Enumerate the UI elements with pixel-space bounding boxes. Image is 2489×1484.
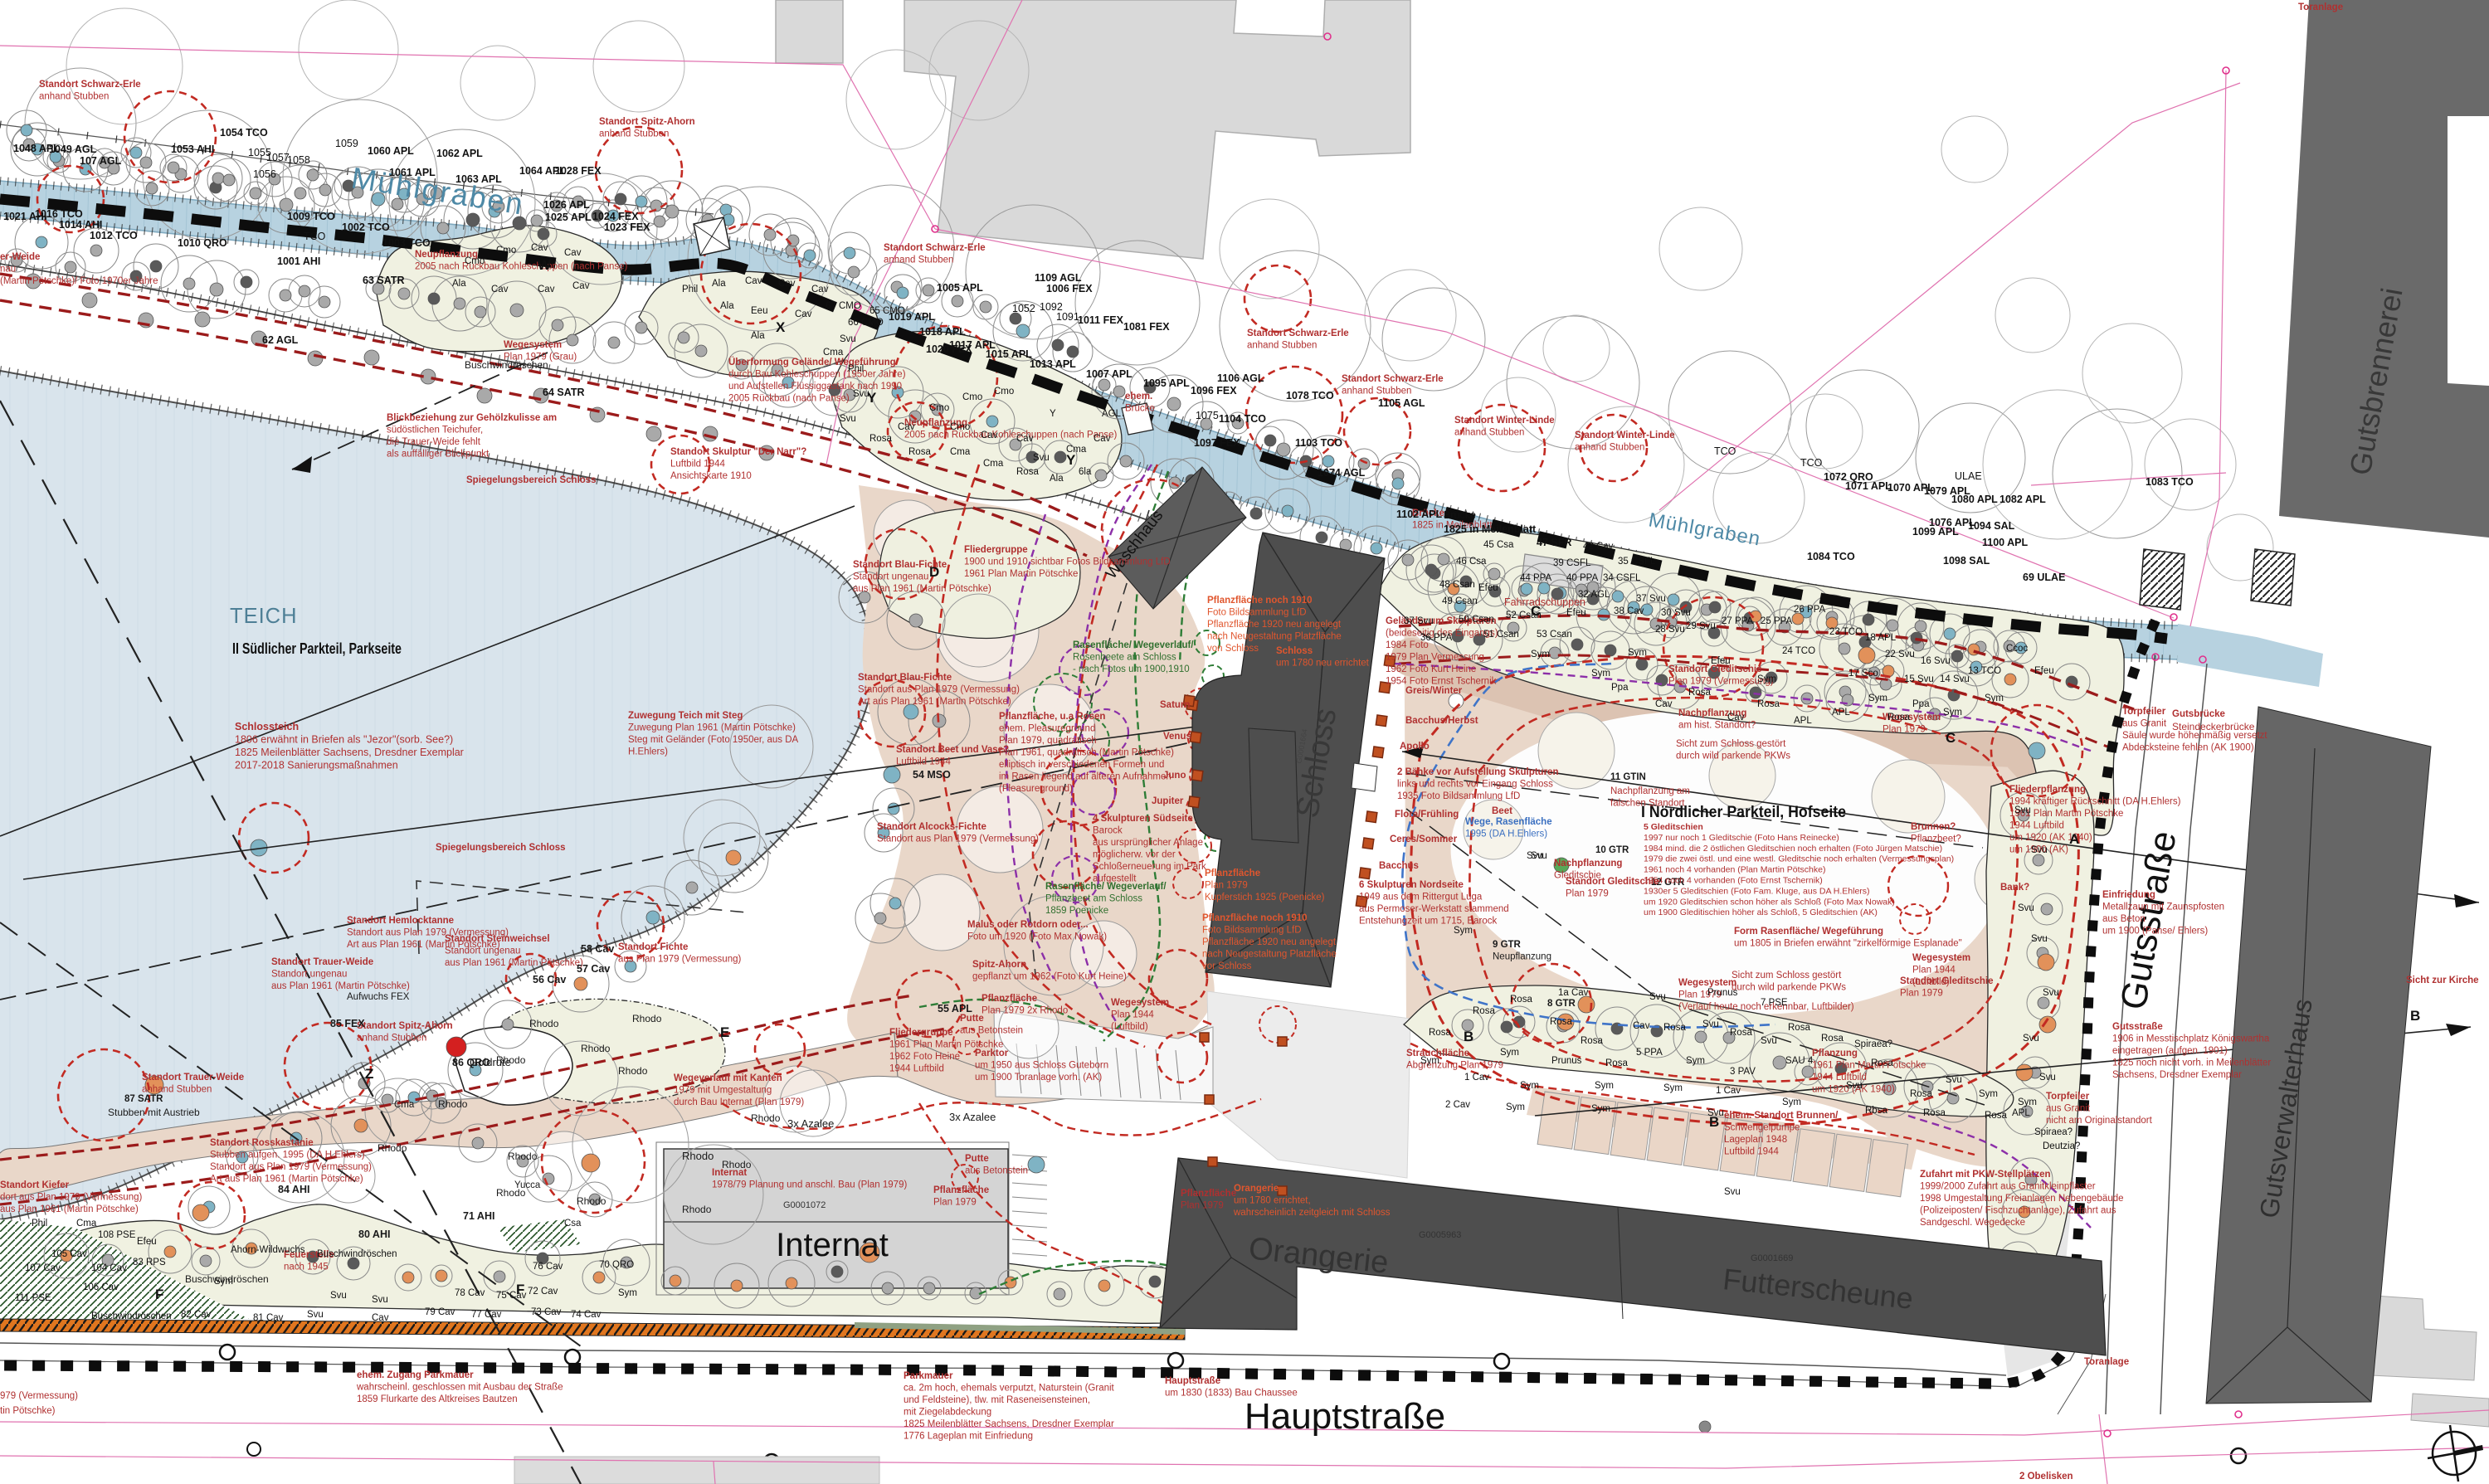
svg-text:63 SATR: 63 SATR [363, 275, 404, 286]
svg-text:Standort ungenau: Standort ungenau [853, 572, 928, 582]
svg-text:A: A [2069, 831, 2079, 847]
svg-text:4 Skulpturen Südseite: 4 Skulpturen Südseite [1093, 814, 1193, 824]
svg-text:Stubben aufgen. 1995 (DA H.Ehl: Stubben aufgen. 1995 (DA H.Ehlers) [210, 1151, 365, 1160]
svg-text:anhand Stubben: anhand Stubben [1454, 428, 1524, 438]
svg-text:Sym: Sym [1506, 1102, 1525, 1112]
svg-text:X: X [776, 319, 786, 335]
svg-text:Schloßerneuerung im Park: Schloßerneuerung im Park [1093, 862, 1206, 872]
svg-text:Ala: Ala [751, 331, 765, 341]
svg-text:1084 TCO: 1084 TCO [1807, 551, 1855, 562]
svg-text:Svu: Svu [372, 1295, 388, 1305]
svg-text:Spiraea?: Spiraea? [1854, 1039, 1892, 1049]
svg-text:Svu: Svu [1033, 453, 1050, 463]
svg-text:Gutsbrücke: Gutsbrücke [2172, 709, 2225, 719]
svg-text:Rosa: Rosa [1550, 1017, 1572, 1027]
svg-text:1998 Umgestaltung Freianlagen: 1998 Umgestaltung Freianlagen Nebengebäu… [1920, 1194, 2124, 1204]
svg-text:1944 Luftbild: 1944 Luftbild [889, 1064, 944, 1074]
svg-text:1013 APL: 1013 APL [1030, 358, 1076, 370]
svg-text:Efeu: Efeu [137, 1237, 157, 1247]
svg-text:2 Cav: 2 Cav [1445, 1100, 1470, 1110]
svg-text:1776 Lageplan mit Einfriedung: 1776 Lageplan mit Einfriedung [904, 1432, 1033, 1442]
svg-text:Wege, Rasenfläche: Wege, Rasenfläche [1465, 817, 1552, 827]
svg-text:um 1920 Gleditschien schon höh: um 1920 Gleditschien schon höher als Sch… [1644, 897, 1895, 907]
svg-text:W: W [538, 257, 552, 273]
svg-text:2005 nach Rückbau Kohleschuppe: 2005 nach Rückbau Kohleschuppen (nach Pa… [904, 431, 1118, 440]
svg-text:Standort aus Plan 1979 (Vermes: Standort aus Plan 1979 (Vermessung) [210, 1162, 372, 1172]
svg-text:1949 aus dem Rittergut Luga: 1949 aus dem Rittergut Luga [1359, 893, 1483, 903]
svg-text:1009 TCO: 1009 TCO [287, 211, 335, 222]
svg-text:Svu: Svu [1527, 851, 1543, 861]
svg-text:Rosa: Rosa [1473, 1006, 1495, 1016]
svg-text:durch wild parkende PKWs: durch wild parkende PKWs [1676, 752, 1790, 761]
svg-text:Toranlage: Toranlage [2298, 2, 2343, 12]
svg-text:64 SATR: 64 SATR [543, 387, 584, 398]
svg-text:Standort Trauer-Weide: Standort Trauer-Weide [271, 957, 373, 967]
svg-text:Fliederpflanzung: Fliederpflanzung [2009, 785, 2086, 795]
svg-text:Rosa: Rosa [1887, 713, 1910, 723]
svg-text:Plan 1944: Plan 1944 [1912, 966, 1956, 976]
svg-text:Rhodo: Rhodo [508, 1151, 538, 1162]
svg-text:Pflanzung: Pflanzung [1812, 1049, 1858, 1058]
svg-text:18 APL: 18 APL [1865, 633, 1897, 643]
svg-text:durch Bau Kohleschuppen (1950e: durch Bau Kohleschuppen (1950er Jahre) [728, 370, 906, 380]
svg-text:Rosa: Rosa [1923, 1108, 1946, 1118]
svg-text:- nach Fotos um 1900,1910: - nach Fotos um 1900,1910 [1073, 664, 1190, 674]
svg-text:Standort Blau-Fichte: Standort Blau-Fichte [858, 673, 952, 683]
svg-text:Cav: Cav [372, 1313, 389, 1323]
svg-text:44 PPA: 44 PPA [1520, 573, 1551, 583]
svg-text:Hauptstraße: Hauptstraße [1165, 1376, 1220, 1386]
svg-text:57 Cav: 57 Cav [577, 963, 610, 975]
svg-text:Stubben mit Austrieb: Stubben mit Austrieb [108, 1107, 200, 1118]
svg-text:Sym: Sym [1500, 1048, 1519, 1058]
svg-text:75 Cav: 75 Cav [496, 1291, 527, 1301]
svg-text:Standort Spitz-Ahorn: Standort Spitz-Ahorn [599, 117, 695, 127]
svg-text:nau: nau [0, 265, 16, 275]
svg-text:32 AGL: 32 AGL [1578, 590, 1610, 600]
svg-text:14 Svu: 14 Svu [1940, 674, 1970, 684]
svg-text:111 PSE: 111 PSE [15, 1293, 51, 1303]
svg-text:10 GTR: 10 GTR [1595, 845, 1629, 855]
svg-text:D: D [929, 564, 939, 580]
svg-text:1014 AHI: 1014 AHI [59, 219, 102, 231]
svg-text:1010 QRO: 1010 QRO [178, 237, 227, 249]
svg-text:Sym: Sym [1686, 1056, 1705, 1066]
svg-text:1105 AGL: 1105 AGL [1378, 397, 1425, 409]
svg-text:Sachsens, Dresdner Exemplar: Sachsens, Dresdner Exemplar [2112, 1070, 2242, 1080]
svg-text:1063 APL: 1063 APL [455, 173, 502, 185]
svg-text:aus Plan 1961 (Martin Pötschke: aus Plan 1961 (Martin Pötschke) [271, 981, 410, 991]
svg-text:Spiraea?: Spiraea? [2034, 1127, 2073, 1137]
svg-text:Pflanzfläche: Pflanzfläche [1181, 1189, 1236, 1199]
svg-text:Brunnen?: Brunnen? [1911, 822, 1956, 832]
svg-text:im Rasen liegend auf älteren A: im Rasen liegend auf älteren Aufnahmen [999, 772, 1171, 782]
svg-text:um 1920 (AK 1940): um 1920 (AK 1940) [2009, 833, 2092, 843]
svg-text:Luftbild 1944: Luftbild 1944 [670, 460, 725, 470]
svg-text:anhand Stubben: anhand Stubben [142, 1085, 212, 1095]
svg-text:anhand Stubben: anhand Stubben [39, 92, 109, 102]
svg-text:Venus: Venus [1163, 732, 1191, 742]
svg-text:Sym: Sym [1520, 1081, 1539, 1091]
svg-text:Sym: Sym [1591, 669, 1610, 679]
svg-text:Standort Schwarz-Erle: Standort Schwarz-Erle [39, 80, 141, 90]
svg-text:Abdecksteine fehlen (AK 1900): Abdecksteine fehlen (AK 1900) [2122, 743, 2254, 753]
svg-text:1999/2000 Zufahrt aus Granitkl: 1999/2000 Zufahrt aus Granitkleinpflaste… [1920, 1182, 2096, 1192]
svg-text:Standort Schwarz-Erle: Standort Schwarz-Erle [1247, 328, 1349, 338]
svg-text:Deutzia?: Deutzia? [2043, 1141, 2080, 1151]
svg-text:28 Svu: 28 Svu [1655, 625, 1685, 635]
svg-text:Art aus Plan 1961 (Martin Pöts: Art aus Plan 1961 (Martin Pötschke) [210, 1175, 363, 1185]
svg-text:1962 Foto Heine: 1962 Foto Heine [889, 1052, 960, 1062]
svg-text:1962 Foto Kurt Heine: 1962 Foto Kurt Heine [1386, 664, 1476, 674]
svg-text:Sym: Sym [1628, 648, 1647, 658]
svg-text:links und rechts vor Eingang S: links und rechts vor Eingang Schloss [1397, 780, 1553, 790]
svg-text:ehem. Pleasureground: ehem. Pleasureground [999, 724, 1095, 734]
svg-text:Svu: Svu [1702, 1019, 1719, 1029]
svg-text:1979 mit Umgestaltung: 1979 mit Umgestaltung [674, 1086, 772, 1096]
svg-text:Svu: Svu [840, 414, 856, 424]
svg-text:Juno: Juno [1163, 771, 1186, 781]
svg-text:Standort Alcocks-Fichte: Standort Alcocks-Fichte [877, 822, 986, 832]
svg-text:1806 erwähnt in Briefen als "J: 1806 erwähnt in Briefen als "Jezor"(sorb… [235, 734, 453, 746]
svg-text:77 Cav: 77 Cav [471, 1310, 502, 1320]
svg-text:um 1780 errichtet,: um 1780 errichtet, [1234, 1196, 1311, 1206]
svg-text:anhand Stubben: anhand Stubben [357, 1034, 426, 1044]
svg-text:dort aus Plan 1979 (Vermessung: dort aus Plan 1979 (Vermessung) [0, 1193, 142, 1203]
svg-text:Orangerie: Orangerie [1234, 1184, 1279, 1194]
svg-text:aus Beton: aus Beton [2102, 914, 2146, 924]
svg-text:1049 AGL: 1049 AGL [49, 144, 97, 155]
svg-text:Svu: Svu [1724, 1187, 1741, 1197]
svg-text:1058: 1058 [287, 154, 310, 166]
svg-text:II Südlicher Parkteil, Parksei: II Südlicher Parkteil, Parkseite [232, 640, 402, 657]
svg-text:40 PPA: 40 PPA [1566, 573, 1598, 583]
svg-text:eingetragen (aufgen. 1901): eingetragen (aufgen. 1901) [2112, 1046, 2228, 1056]
svg-text:74 Cav: 74 Cav [571, 1310, 602, 1320]
svg-text:1057: 1057 [266, 152, 290, 163]
svg-text:Zuwegung Teich mit Steg: Zuwegung Teich mit Steg [628, 711, 743, 721]
svg-text:5 Gleditschien: 5 Gleditschien [1644, 822, 1703, 832]
svg-text:Steindeckerbrücke: Steindeckerbrücke [2172, 721, 2255, 732]
svg-text:Sym: Sym [618, 1288, 637, 1298]
svg-text:Neupflanzung: Neupflanzung [1493, 952, 1551, 962]
svg-text:um 1830 (1833) Bau Chaussee: um 1830 (1833) Bau Chaussee [1165, 1389, 1298, 1399]
svg-text:Torpfeiler: Torpfeiler [2122, 707, 2166, 717]
svg-text:aus Granit: aus Granit [2122, 719, 2167, 729]
svg-text:1002 TCO: 1002 TCO [342, 221, 390, 233]
svg-text:Standort Schwarz-Erle: Standort Schwarz-Erle [1342, 374, 1444, 384]
svg-text:Standort Kiefer: Standort Kiefer [0, 1180, 70, 1190]
svg-text:Pflanzfläche noch 1910: Pflanzfläche noch 1910 [1207, 596, 1313, 606]
svg-text:Sym: Sym [1420, 1056, 1439, 1066]
svg-text:Cav: Cav [1633, 1021, 1650, 1031]
svg-text:35 CSFL: 35 CSFL [1618, 557, 1656, 567]
svg-text:TCO: TCO [1800, 457, 1823, 469]
svg-text:Jupiter: Jupiter [1152, 796, 1184, 806]
svg-text:nach 1945: nach 1945 [284, 1263, 329, 1272]
svg-text:104 Cav: 104 Cav [91, 1263, 127, 1273]
svg-text:Internat: Internat [776, 1227, 889, 1263]
svg-text:aus Plan 1961 (Martin Pötschke: aus Plan 1961 (Martin Pötschke) [853, 584, 991, 594]
svg-text:Rosa: Rosa [1871, 1058, 1893, 1068]
svg-text:durch wild parkende PKWs: durch wild parkende PKWs [1732, 983, 1846, 993]
svg-text:Torpfeiler: Torpfeiler [2046, 1092, 2090, 1102]
svg-text:1 Cav: 1 Cav [1464, 1073, 1489, 1083]
svg-text:1082 APL: 1082 APL [1999, 494, 2046, 505]
svg-text:Rhodo: Rhodo [682, 1204, 712, 1215]
svg-text:Wegeverlauf mit Kanten: Wegeverlauf mit Kanten [674, 1073, 782, 1083]
svg-text:Rosa: Rosa [908, 447, 931, 457]
svg-text:Wegesystem: Wegesystem [1912, 953, 1970, 963]
svg-text:Ala: Ala [712, 279, 726, 289]
svg-text:1080 APL: 1080 APL [1951, 494, 1998, 505]
svg-text:5 PPA: 5 PPA [1636, 1048, 1663, 1058]
svg-text:wahrscheinlich zeitgleich mit: wahrscheinlich zeitgleich mit Schloss [1233, 1208, 1391, 1218]
svg-text:Ccoc: Ccoc [2006, 644, 2028, 654]
svg-text:Cav: Cav [981, 431, 998, 440]
svg-text:Standort Schwarz-Erle: Standort Schwarz-Erle [884, 243, 986, 253]
svg-text:1015 APL: 1015 APL [986, 348, 1032, 360]
svg-text:Efeu: Efeu [1478, 583, 1498, 593]
svg-text:B: B [2410, 1008, 2420, 1024]
svg-text:Brücke: Brücke [1444, 509, 1476, 521]
svg-text:Buschwindröschen: Buschwindröschen [317, 1249, 397, 1259]
svg-text:Standort Winter-Linde: Standort Winter-Linde [1454, 416, 1555, 426]
svg-text:Cav: Cav [898, 422, 915, 432]
svg-text:Cav: Cav [1016, 434, 1034, 444]
svg-text:72 Cav: 72 Cav [528, 1287, 558, 1297]
svg-text:83 RPS: 83 RPS [133, 1258, 166, 1267]
svg-text:G0001669: G0001669 [1751, 1253, 1793, 1263]
svg-text:Efeu: Efeu [1711, 656, 1731, 666]
svg-text:3 PAV: 3 PAV [1730, 1067, 1756, 1077]
svg-text:Svu: Svu [1846, 1081, 1863, 1091]
svg-text:Cma: Cma [1066, 445, 1087, 455]
svg-text:1103 TCO: 1103 TCO [1295, 437, 1342, 449]
svg-text:11 GTIN: 11 GTIN [1610, 772, 1646, 782]
svg-text:Y: Y [1050, 409, 1056, 419]
svg-text:1825 noch nicht vorh. in Meile: 1825 noch nicht vorh. in Meilenblätter [2112, 1058, 2271, 1068]
svg-text:Rosa: Rosa [1581, 1036, 1603, 1046]
svg-text:Cav: Cav [1094, 434, 1111, 444]
svg-text:Efeu: Efeu [2034, 666, 2054, 676]
svg-text:um 1950 aus Schloss Guteborn: um 1950 aus Schloss Guteborn [975, 1061, 1108, 1071]
svg-text:1100 APL: 1100 APL [1982, 537, 2028, 548]
svg-text:67 CMO: 67 CMO [826, 301, 861, 311]
svg-text:Foto um 1920 (Foto Max Nowak): Foto um 1920 (Foto Max Nowak) [967, 932, 1107, 942]
svg-text:Ala: Ala [720, 301, 734, 311]
svg-text:Hauptstraße: Hauptstraße [1244, 1396, 1445, 1437]
svg-text:Buschwindröschen: Buschwindröschen [91, 1311, 172, 1321]
svg-text:37 Svu: 37 Svu [1636, 594, 1666, 604]
svg-text:Luftbild 1944: Luftbild 1944 [1724, 1147, 1779, 1157]
svg-text:Csa: Csa [564, 1219, 582, 1229]
svg-text:1023 FEX: 1023 FEX [604, 221, 650, 233]
svg-text:49 Csan: 49 Csan [1442, 596, 1478, 606]
svg-text:um 1805 in Briefen erwähnt "zi: um 1805 in Briefen erwähnt "zirkelförmig… [1734, 939, 1962, 949]
svg-text:56 Cav: 56 Cav [533, 974, 566, 985]
svg-text:Sym: Sym [1868, 693, 1887, 703]
svg-text:Greis/Winter: Greis/Winter [1405, 686, 1463, 696]
svg-text:1978/79 Planung und anschl. Ba: 1978/79 Planung und anschl. Bau (Plan 19… [712, 1180, 907, 1190]
svg-text:Entstehungzeit um 1715, Barock: Entstehungzeit um 1715, Barock [1359, 917, 1497, 927]
svg-text:anhand Stubben: anhand Stubben [1575, 443, 1644, 453]
svg-text:1083 TCO: 1083 TCO [2146, 476, 2194, 488]
svg-text:Art aus Plan 1961 (Martin Pöts: Art aus Plan 1961 (Martin Pötschke) [858, 697, 1011, 707]
svg-text:Rosa: Rosa [1985, 1111, 2007, 1121]
svg-text:Ppa: Ppa [1611, 683, 1629, 693]
svg-text:Standort Fichte: Standort Fichte [618, 942, 688, 952]
svg-text:1078 TCO: 1078 TCO [1286, 390, 1334, 401]
svg-text:Rhodo: Rhodo [632, 1013, 662, 1024]
svg-text:1995 (DA H.Ehlers): 1995 (DA H.Ehlers) [1465, 830, 1547, 839]
svg-text:Spiegelungsbereich Schloss: Spiegelungsbereich Schloss [466, 475, 597, 485]
svg-text:Plan 1979 2x Rhodo: Plan 1979 2x Rhodo [981, 1006, 1068, 1016]
svg-text:65 CMO: 65 CMO [869, 306, 905, 316]
svg-text:1059: 1059 [335, 138, 358, 149]
svg-text:27 PPA: 27 PPA [1722, 616, 1753, 626]
svg-text:APL: APL [2012, 1108, 2030, 1118]
svg-text:Parkmauer: Parkmauer [904, 1371, 953, 1381]
svg-text:Ansichtskarte 1910: Ansichtskarte 1910 [670, 471, 752, 481]
svg-text:Wegesystem: Wegesystem [504, 340, 562, 350]
svg-text:Foto Bildsammlung LfD: Foto Bildsammlung LfD [1207, 608, 1307, 618]
svg-text:Rbsa: Rbsa [1865, 1106, 1887, 1116]
svg-text:23 TCO: 23 TCO [1829, 627, 1863, 637]
svg-text:Rhodo: Rhodo [529, 1018, 559, 1029]
svg-text:Ppa: Ppa [1912, 699, 1930, 709]
svg-text:Eeu: Eeu [751, 306, 767, 316]
svg-text:Rhodo: Rhodo [377, 1142, 407, 1154]
svg-text:Rhodo: Rhodo [581, 1043, 611, 1054]
svg-text:Cav: Cav [778, 279, 796, 289]
svg-text:1979 Plan Vermessung: 1979 Plan Vermessung [1386, 653, 1484, 663]
svg-text:Pflanzfläche 1920 neu angelegt: Pflanzfläche 1920 neu angelegt [1202, 937, 1337, 947]
svg-text:1053 AHI: 1053 AHI [171, 144, 214, 155]
svg-text:ca. 2m hoch, ehemals verputzt,: ca. 2m hoch, ehemals verputzt, Naturstei… [904, 1384, 1115, 1394]
svg-text:3x Azalee: 3x Azalee [949, 1111, 996, 1123]
svg-text:Metallzaun mit Zaunspfosten: Metallzaun mit Zaunspfosten [2102, 903, 2224, 912]
svg-text:1859 Poenicke: 1859 Poenicke [1045, 906, 1108, 916]
svg-text:2 Bänke vor Aufstellung Skulpt: 2 Bänke vor Aufstellung Skulpturen [1397, 767, 1558, 777]
svg-text:ULAE: ULAE [1955, 470, 1982, 482]
svg-text:42 Cav: 42 Cav [1583, 542, 1614, 552]
svg-text:1074 AGL: 1074 AGL [1318, 467, 1366, 479]
svg-text:86 QRO: 86 QRO [452, 1057, 490, 1068]
svg-text:Malus oder Rotdorn oder...: Malus oder Rotdorn oder... [967, 920, 1089, 930]
svg-text:Rosa: Rosa [1757, 699, 1780, 709]
svg-text:Cma: Cma [76, 1219, 97, 1229]
svg-text:Rosa: Rosa [1910, 1089, 1932, 1099]
svg-text:Standort Beet und Vase?: Standort Beet und Vase? [896, 745, 1009, 755]
svg-text:26 PPA: 26 PPA [1794, 605, 1825, 615]
svg-text:Cav: Cav [795, 309, 812, 319]
svg-text:Pflanzfläche: Pflanzfläche [981, 994, 1037, 1004]
svg-text:1095 APL: 1095 APL [1143, 377, 1190, 389]
svg-text:16 Svu: 16 Svu [1921, 656, 1951, 666]
svg-text:Spitz-Ahorn: Spitz-Ahorn [972, 960, 1026, 970]
svg-text:1024 FEX: 1024 FEX [592, 211, 639, 222]
svg-text:1081 FEX: 1081 FEX [1123, 321, 1170, 333]
svg-text:Plan 1979: Plan 1979 [1883, 725, 1926, 735]
svg-text:73 Cav: 73 Cav [531, 1307, 562, 1317]
svg-text:Bacchus/Herbst: Bacchus/Herbst [1405, 716, 1478, 726]
svg-text:B: B [1464, 1029, 1473, 1044]
svg-text:Wegesystem: Wegesystem [1678, 978, 1736, 988]
svg-text:SAU 4: SAU 4 [1785, 1056, 1814, 1066]
svg-text:Sicht zum Schloss gestört: Sicht zum Schloss gestört [1732, 971, 1842, 980]
svg-text:Standort Winter-Linde: Standort Winter-Linde [1575, 431, 1675, 440]
svg-text:Rhodo: Rhodo [618, 1065, 648, 1077]
svg-text:ehem. Standort Brunnen/: ehem. Standort Brunnen/ [1724, 1111, 1839, 1121]
svg-text:Cav: Cav [811, 285, 829, 294]
svg-text:Brücke: Brücke [1125, 404, 1155, 414]
svg-text:2017-2018 Sanierungsmaßnahmen: 2017-2018 Sanierungsmaßnahmen [235, 760, 398, 771]
svg-text:1096 FEX: 1096 FEX [1191, 385, 1237, 397]
svg-text:Plan 1961, quadratisch (Martin: Plan 1961, quadratisch (Martin Pötschke) [999, 748, 1174, 758]
svg-text:die Trauer-Weide fehlt: die Trauer-Weide fehlt [387, 437, 481, 447]
svg-text:1954 noch 4 vorhanden (Foto Er: 1954 noch 4 vorhanden (Foto Ernst Tscher… [1644, 876, 1823, 886]
svg-text:50 Csan: 50 Csan [1459, 615, 1494, 625]
svg-text:Cmo: Cmo [994, 387, 1014, 397]
svg-text:er-Weide: er-Weide [0, 252, 40, 262]
svg-text:1005 APL: 1005 APL [937, 282, 983, 294]
svg-text:62 AGL: 62 AGL [262, 334, 299, 346]
svg-text:Parktor: Parktor [975, 1049, 1009, 1058]
svg-text:1026 APL: 1026 APL [543, 199, 590, 211]
svg-text:Svu: Svu [2039, 1073, 2056, 1083]
svg-text:Standort ungenau: Standort ungenau [445, 946, 520, 956]
svg-text:um 1900 Gleditischien höher al: um 1900 Gleditischien höher als Schloß, … [1644, 907, 1878, 917]
svg-text:Rosa: Rosa [1688, 688, 1711, 698]
svg-text:nicht am Originalstandort: nicht am Originalstandort [2046, 1116, 2153, 1126]
svg-text:1961 noch 4 vorhanden (Plan Ma: 1961 noch 4 vorhanden (Plan Martin Pötsc… [1644, 865, 1825, 875]
svg-text:46 Csa: 46 Csa [1456, 557, 1487, 567]
svg-text:Ala: Ala [1050, 474, 1064, 484]
svg-text:Z: Z [365, 1066, 373, 1082]
svg-text:1098 SAL: 1098 SAL [1943, 555, 1990, 567]
svg-text:Apollo: Apollo [1400, 742, 1430, 752]
svg-text:aus Plan 1979 (Vermessung): aus Plan 1979 (Vermessung) [618, 955, 741, 965]
svg-text:1012 TCO: 1012 TCO [90, 230, 138, 241]
svg-text:Spiegelungsbereich Schloss: Spiegelungsbereich Schloss [436, 843, 566, 853]
svg-text:Svu: Svu [1707, 1108, 1724, 1118]
svg-text:1944 Luftbild: 1944 Luftbild [2009, 821, 2064, 831]
svg-text:Bank?: Bank? [2000, 883, 2029, 893]
svg-text:Rosa: Rosa [1730, 1028, 1752, 1038]
svg-text:Sym: Sym [1454, 926, 1473, 936]
svg-text:Svu: Svu [330, 1291, 347, 1301]
svg-text:Svu: Svu [2043, 988, 2059, 998]
svg-text:1071 APL: 1071 APL [1845, 480, 1892, 492]
svg-text:53 Csan: 53 Csan [1537, 630, 1572, 640]
svg-text:um 1900 (Panse/ Ehlers): um 1900 (Panse/ Ehlers) [2102, 927, 2208, 937]
svg-text:durch Bau Internat (Plan 1979): durch Bau Internat (Plan 1979) [674, 1097, 804, 1107]
svg-text:(Luftbild): (Luftbild) [1111, 1022, 1148, 1032]
svg-text:Cma: Cma [394, 1100, 415, 1110]
svg-text:Lageplan 1948: Lageplan 1948 [1724, 1135, 1787, 1145]
svg-text:Sicht zur Kirche: Sicht zur Kirche [2406, 976, 2479, 985]
svg-text:G0005963: G0005963 [1419, 1230, 1461, 1240]
svg-text:1011 FEX: 1011 FEX [1078, 314, 1124, 326]
svg-text:Fliedergruppe: Fliedergruppe [964, 545, 1028, 555]
svg-text:Rasenfläche/ Wegeverlauf/: Rasenfläche/ Wegeverlauf/ [1073, 640, 1194, 650]
svg-text:Nachpflanzung: Nachpflanzung [1554, 859, 1622, 869]
svg-text:Svu: Svu [2018, 903, 2034, 913]
svg-text:nach Neugestaltung Platzfläche: nach Neugestaltung Platzfläche [1207, 632, 1342, 642]
svg-text:Pflanzfläche, u.a Rosen: Pflanzfläche, u.a Rosen [999, 712, 1105, 722]
svg-text:1001 AHI: 1001 AHI [277, 255, 320, 267]
